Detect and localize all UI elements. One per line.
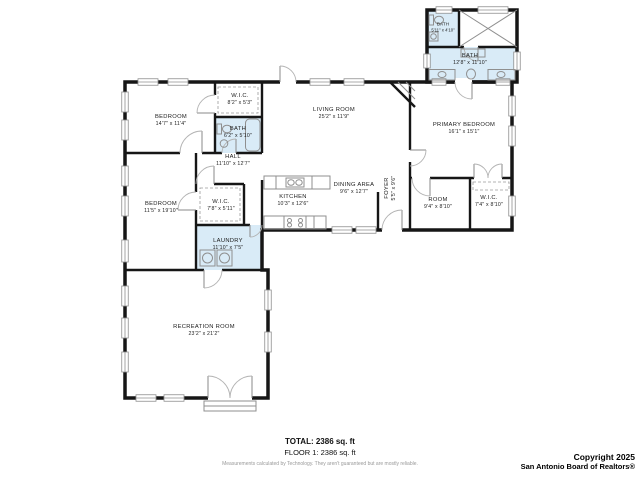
room-label-kitchen: KITCHEN 10'3" x 12'6" (277, 194, 308, 208)
room-label-bedroom-top: BEDROOM 14'7" x 11'4" (155, 114, 187, 128)
floorplan-drawing (0, 0, 640, 480)
room-label-bath-small: BATH 5'11" x 4'10" (431, 21, 454, 32)
room-label-wic-mid: W.I.C. 7'8" x 5'11" (207, 199, 235, 213)
room-label-laundry: LAUNDRY 11'10" x 7'5" (213, 238, 244, 252)
room-label-recreation-room: RECREATION ROOM 23'2" x 21'2" (173, 324, 235, 338)
room-label-foyer: FOYER 5'5" x 9'6" (384, 176, 398, 201)
porch-steps (204, 401, 256, 411)
total-area-text: TOTAL: 2386 sq. ft (0, 437, 640, 446)
room-label-wic-top: W.I.C. 8'2" x 5'3" (228, 93, 253, 107)
room-label-primary-bedroom: PRIMARY BEDROOM 16'1" x 15'1" (433, 122, 495, 136)
room-label-bath-top: BATH 12'8" x 11'10" (453, 53, 487, 67)
copyright-text: Copyright 2025 San Antonio Board of Real… (521, 452, 635, 471)
floorplan-page: BEDROOM 14'7" x 11'4" W.I.C. 8'2" x 5'3"… (0, 0, 640, 480)
room-label-wic-right: W.I.C. 7'4" x 8'10" (475, 195, 503, 209)
room-label-dining-area: DINING AREA 9'6" x 12'7" (334, 182, 375, 196)
room-label-bedroom-left: BEDROOM 11'5" x 19'10" (144, 201, 178, 215)
fireplace-hatch (398, 82, 415, 99)
closet-x-icon (459, 10, 517, 47)
room-label-room-right: ROOM 9'4" x 8'10" (424, 197, 452, 211)
copyright-year: Copyright 2025 (521, 452, 635, 462)
room-label-hall: HALL 11'10" x 12'7" (216, 154, 250, 168)
copyright-org: San Antonio Board of Realtors® (521, 462, 635, 471)
room-label-bath-mid: BATH 6'2" x 5'10" (224, 126, 252, 140)
room-label-living-room: LIVING ROOM 25'2" x 11'9" (313, 107, 355, 121)
